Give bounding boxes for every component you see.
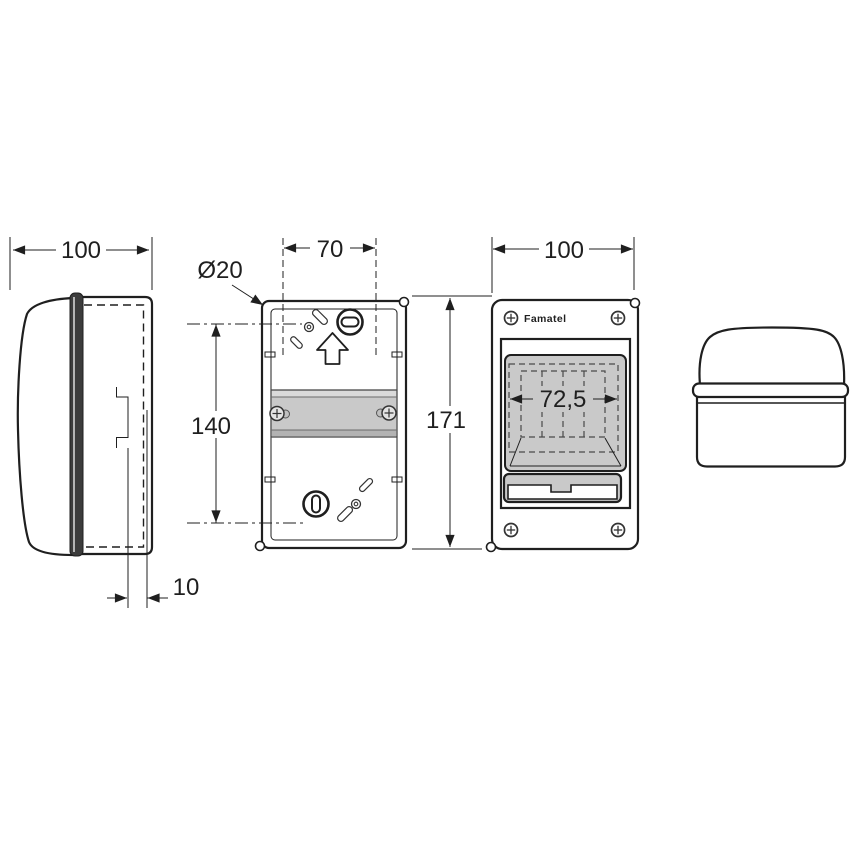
screw-icon (612, 524, 625, 537)
enclosure-drawing: Famatel (0, 0, 850, 850)
corner-hole-icon (487, 543, 496, 552)
brand-label: Famatel (524, 313, 566, 325)
corner-hole-icon (631, 299, 640, 308)
knockout-bottom-slot (312, 496, 320, 513)
dim-text: 100 (61, 237, 101, 264)
screw-hole-bottom-icon (352, 500, 361, 509)
dim-text: 140 (191, 413, 231, 440)
front-view: Famatel (487, 299, 640, 552)
din-rail-lower-lip (272, 430, 396, 437)
corner-hole-icon (400, 298, 409, 307)
din-rail (270, 390, 397, 437)
corner-hole-icon (256, 542, 265, 551)
screw-icon (612, 312, 625, 325)
dim-text: Ø20 (197, 257, 242, 284)
screw-icon (505, 524, 518, 537)
side-cover-profile (18, 298, 73, 555)
dim-overall-height: 171 (412, 296, 492, 549)
dim-front-overall-width: 100 (492, 237, 634, 293)
dim-text: 70 (317, 236, 344, 263)
dim-side-overall-width: 100 (10, 237, 152, 290)
dim-text: 72,5 (540, 386, 587, 413)
base-body (697, 396, 845, 467)
screw-icon (505, 312, 518, 325)
dim-text: 10 (173, 574, 200, 601)
knockout-top-slot (342, 318, 359, 327)
module-window (505, 355, 626, 471)
top-view (693, 328, 848, 467)
cover-flange-band (693, 384, 848, 398)
technical-drawing-canvas: Famatel (0, 0, 850, 850)
cover-dome (699, 328, 844, 386)
dim-knockout-diameter: Ø20 (197, 257, 263, 305)
side-view (18, 293, 152, 556)
cover-edge-strip (70, 293, 83, 556)
dim-text: 100 (544, 237, 584, 264)
screw-hole-top-icon (305, 323, 314, 332)
dim-text: 171 (426, 407, 466, 434)
side-body (82, 297, 152, 554)
back-view (256, 298, 409, 551)
